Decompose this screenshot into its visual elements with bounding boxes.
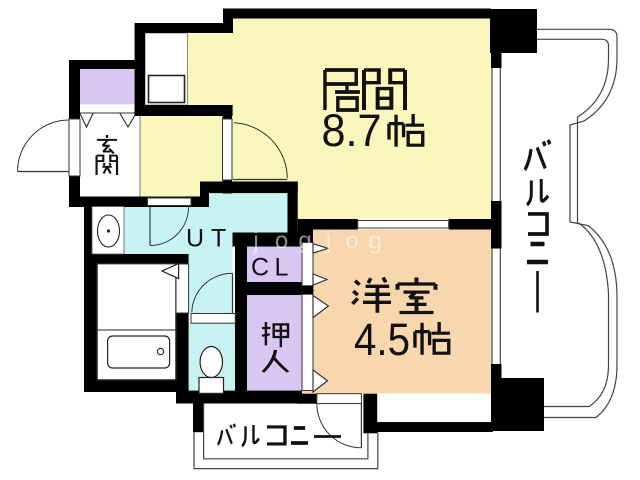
svg-text:g: g bbox=[298, 228, 311, 255]
svg-text:g: g bbox=[368, 228, 381, 255]
svg-text:CL: CL bbox=[251, 254, 294, 282]
svg-text:j: j bbox=[252, 228, 258, 255]
svg-text:UT: UT bbox=[186, 225, 233, 253]
svg-text:4.5: 4.5 bbox=[354, 314, 410, 365]
svg-text:8.7: 8.7 bbox=[322, 105, 382, 156]
svg-text:j: j bbox=[325, 228, 331, 255]
svg-text:o: o bbox=[345, 228, 358, 255]
svg-text:o: o bbox=[275, 228, 288, 255]
